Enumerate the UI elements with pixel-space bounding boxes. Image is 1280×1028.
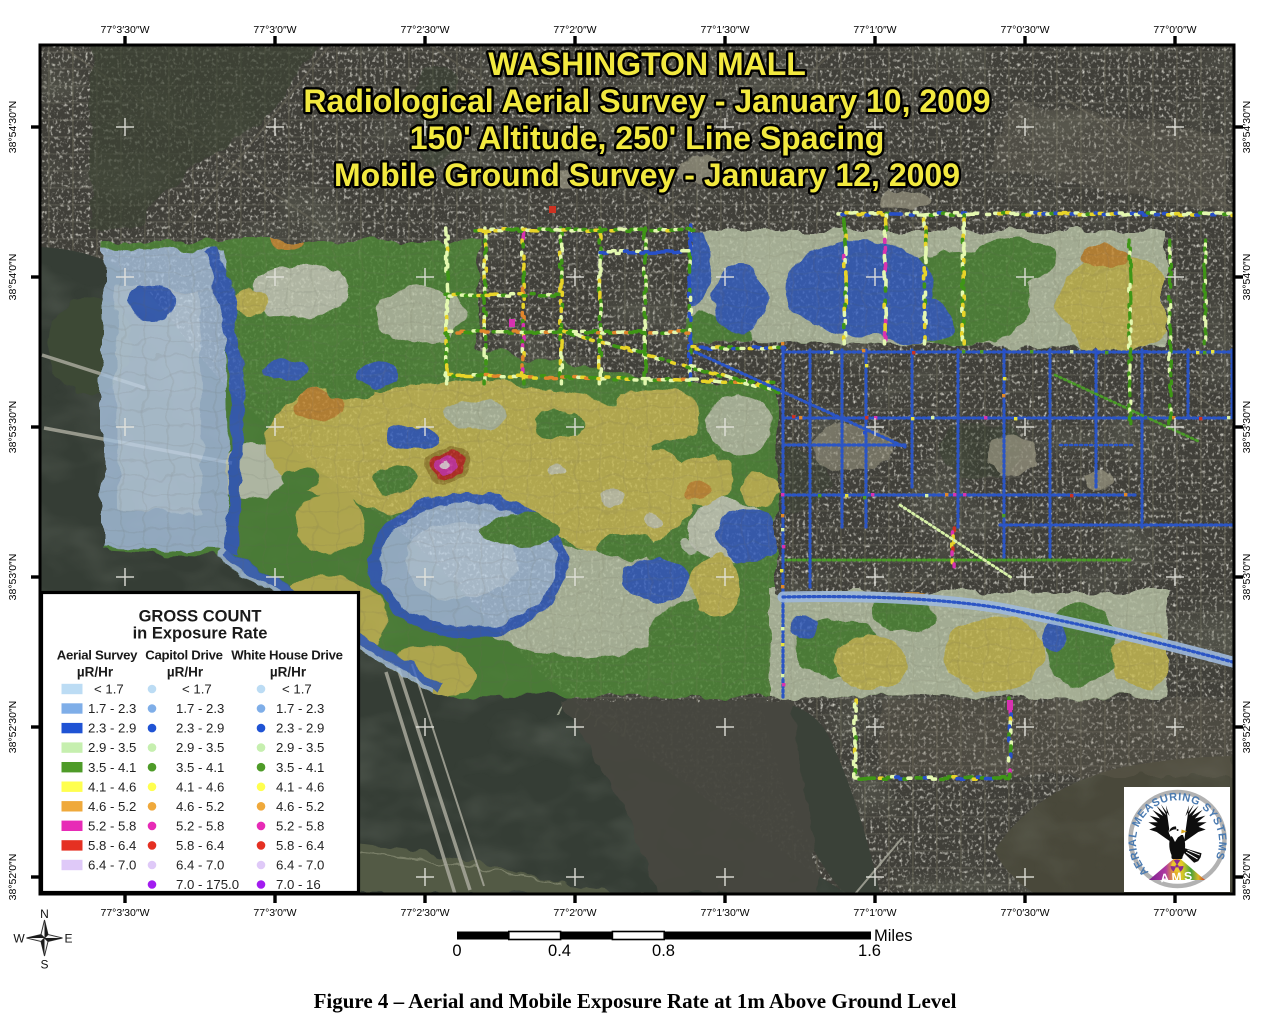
svg-text:77°1′30″W: 77°1′30″W	[701, 24, 750, 36]
svg-text:E: E	[64, 932, 72, 946]
svg-text:77°3′0″W: 77°3′0″W	[253, 907, 296, 919]
svg-text:77°0′0″W: 77°0′0″W	[1153, 24, 1196, 36]
svg-text:Miles: Miles	[874, 927, 913, 945]
svg-text:2.9 - 3.5: 2.9 - 3.5	[88, 740, 136, 755]
svg-text:2.9 - 3.5: 2.9 - 3.5	[276, 740, 324, 755]
svg-text:38°53′30″N: 38°53′30″N	[1241, 401, 1253, 454]
svg-text:0.8: 0.8	[652, 942, 675, 960]
svg-text:77°2′30″W: 77°2′30″W	[401, 24, 450, 36]
svg-text:< 1.7: < 1.7	[282, 682, 312, 697]
svg-text:7.0 - 16: 7.0 - 16	[276, 877, 321, 892]
svg-text:38°53′30″N: 38°53′30″N	[7, 401, 19, 454]
svg-text:Radiological Aerial Survey - J: Radiological Aerial Survey - January 10,…	[303, 83, 990, 119]
svg-text:4.1 - 4.6: 4.1 - 4.6	[276, 779, 324, 794]
svg-text:White House Drive: White House Drive	[231, 648, 342, 663]
svg-text:5.8 - 6.4: 5.8 - 6.4	[176, 838, 224, 853]
svg-text:77°0′30″W: 77°0′30″W	[1001, 907, 1050, 919]
svg-text:5.8 - 6.4: 5.8 - 6.4	[88, 838, 136, 853]
svg-text:38°54′30″N: 38°54′30″N	[1241, 101, 1253, 154]
svg-text:38°54′0″N: 38°54′0″N	[1241, 254, 1253, 301]
svg-text:µR/Hr: µR/Hr	[77, 665, 114, 680]
svg-text:77°1′30″W: 77°1′30″W	[701, 907, 750, 919]
svg-text:N: N	[40, 907, 49, 921]
svg-text:77°2′0″W: 77°2′0″W	[553, 907, 596, 919]
svg-text:Figure 4 – Aerial and Mobile E: Figure 4 – Aerial and Mobile Exposure Ra…	[314, 989, 957, 1013]
svg-text:< 1.7: < 1.7	[94, 682, 124, 697]
svg-text:2.9 - 3.5: 2.9 - 3.5	[176, 740, 224, 755]
svg-text:Capitol Drive: Capitol Drive	[145, 648, 222, 663]
svg-text:77°3′0″W: 77°3′0″W	[253, 24, 296, 36]
svg-text:6.4 - 7.0: 6.4 - 7.0	[276, 858, 324, 873]
svg-text:3.5 - 4.1: 3.5 - 4.1	[276, 760, 324, 775]
svg-text:1.7 - 2.3: 1.7 - 2.3	[88, 701, 136, 716]
svg-text:150' Altitude, 250' Line Spaci: 150' Altitude, 250' Line Spacing	[410, 120, 885, 156]
svg-text:4.6 - 5.2: 4.6 - 5.2	[276, 799, 324, 814]
svg-text:< 1.7: < 1.7	[182, 682, 212, 697]
svg-text:5.2 - 5.8: 5.2 - 5.8	[176, 819, 224, 834]
svg-text:S: S	[40, 958, 48, 972]
svg-text:5.8 - 6.4: 5.8 - 6.4	[276, 838, 324, 853]
svg-text:Mobile Ground Survey - January: Mobile Ground Survey - January 12, 2009	[334, 157, 960, 193]
svg-text:38°52′30″N: 38°52′30″N	[1241, 701, 1253, 754]
svg-text:38°52′30″N: 38°52′30″N	[7, 701, 19, 754]
svg-text:77°1′0″W: 77°1′0″W	[853, 907, 896, 919]
svg-text:38°52′0″N: 38°52′0″N	[7, 854, 19, 901]
svg-text:77°1′0″W: 77°1′0″W	[853, 24, 896, 36]
svg-text:38°52′0″N: 38°52′0″N	[1241, 854, 1253, 901]
svg-text:4.1 - 4.6: 4.1 - 4.6	[88, 779, 136, 794]
svg-text:µR/Hr: µR/Hr	[167, 665, 204, 680]
svg-text:Aerial Survey: Aerial Survey	[57, 648, 138, 663]
svg-text:5.2 - 5.8: 5.2 - 5.8	[276, 819, 324, 834]
svg-text:4.6 - 5.2: 4.6 - 5.2	[88, 799, 136, 814]
svg-text:6.4 - 7.0: 6.4 - 7.0	[176, 858, 224, 873]
svg-text:7.0 - 175.0: 7.0 - 175.0	[176, 877, 239, 892]
svg-text:2.3 - 2.9: 2.3 - 2.9	[276, 721, 324, 736]
svg-text:in Exposure Rate: in Exposure Rate	[133, 625, 268, 643]
svg-text:77°2′0″W: 77°2′0″W	[553, 24, 596, 36]
svg-text:4.1 - 4.6: 4.1 - 4.6	[176, 779, 224, 794]
svg-text:3.5 - 4.1: 3.5 - 4.1	[88, 760, 136, 775]
svg-text:0.4: 0.4	[548, 942, 571, 960]
svg-text:77°0′0″W: 77°0′0″W	[1153, 907, 1196, 919]
svg-text:1.7 - 2.3: 1.7 - 2.3	[176, 701, 224, 716]
svg-text:0: 0	[452, 942, 461, 960]
svg-text:77°2′30″W: 77°2′30″W	[401, 907, 450, 919]
svg-text:GROSS COUNT: GROSS COUNT	[139, 608, 262, 626]
svg-text:4.6 - 5.2: 4.6 - 5.2	[176, 799, 224, 814]
svg-text:77°0′30″W: 77°0′30″W	[1001, 24, 1050, 36]
svg-text:µR/Hr: µR/Hr	[270, 665, 307, 680]
svg-text:38°53′0″N: 38°53′0″N	[7, 554, 19, 601]
svg-text:5.2 - 5.8: 5.2 - 5.8	[88, 819, 136, 834]
svg-text:38°54′30″N: 38°54′30″N	[7, 101, 19, 154]
svg-text:1.7 - 2.3: 1.7 - 2.3	[276, 701, 324, 716]
svg-text:WASHINGTON MALL: WASHINGTON MALL	[488, 46, 806, 82]
svg-text:3.5 - 4.1: 3.5 - 4.1	[176, 760, 224, 775]
svg-text:2.3 - 2.9: 2.3 - 2.9	[88, 721, 136, 736]
svg-text:6.4 - 7.0: 6.4 - 7.0	[88, 858, 136, 873]
svg-text:77°3′30″W: 77°3′30″W	[101, 24, 150, 36]
svg-text:W: W	[13, 932, 25, 946]
svg-text:2.3 - 2.9: 2.3 - 2.9	[176, 721, 224, 736]
svg-text:77°3′30″W: 77°3′30″W	[101, 907, 150, 919]
svg-text:38°54′0″N: 38°54′0″N	[7, 254, 19, 301]
svg-text:AMS: AMS	[1160, 869, 1195, 885]
svg-text:38°53′0″N: 38°53′0″N	[1241, 554, 1253, 601]
